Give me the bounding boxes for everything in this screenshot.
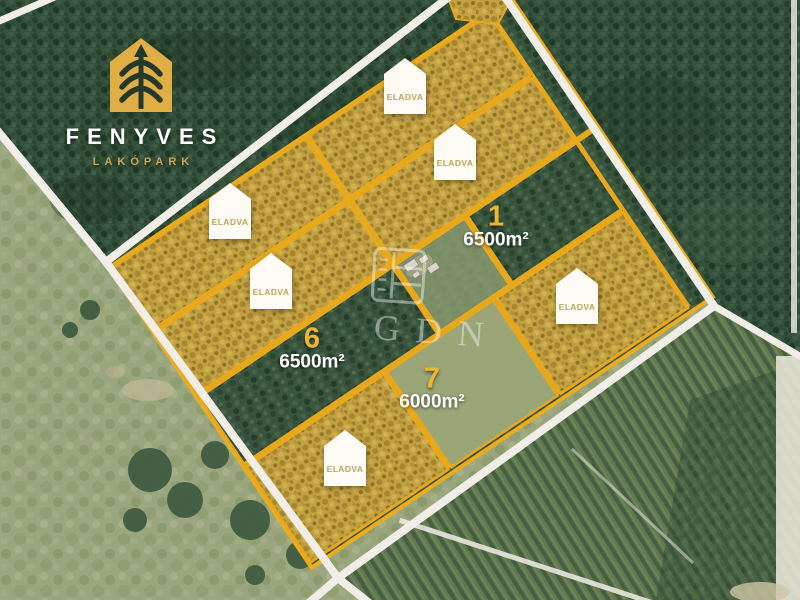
parcel-label: 6 6500m² [279, 326, 345, 373]
parcel-area: 6000m² [399, 392, 465, 413]
sold-badge-label: ELADVA [250, 287, 292, 297]
parcel-area: 6500m² [279, 352, 345, 373]
sold-badge: ELADVA [556, 268, 598, 324]
house-icon [556, 268, 598, 324]
parcel-label: 1 6500m² [463, 204, 529, 251]
light-strip-right [776, 356, 800, 600]
sold-badge-label: ELADVA [556, 302, 598, 312]
parcel-number: 7 [399, 366, 465, 392]
parcel-number: 6 [279, 326, 345, 352]
aerial-parcel-map: FENYVES LAKÓPARK GDN ELADVA ELADVA [0, 0, 800, 600]
sold-badge: ELADVA [324, 430, 366, 486]
sold-badge: ELADVA [209, 183, 251, 239]
sold-badge: ELADVA [250, 253, 292, 309]
parcel-number: 1 [463, 204, 529, 230]
house-icon [209, 183, 251, 239]
sold-badge-label: ELADVA [324, 464, 366, 474]
sold-badge-label: ELADVA [209, 217, 251, 227]
sold-badge: ELADVA [434, 124, 476, 180]
house-icon [384, 58, 426, 114]
sold-badge-label: ELADVA [434, 158, 476, 168]
sold-badge: ELADVA [384, 58, 426, 114]
house-icon [324, 430, 366, 486]
sold-badge-label: ELADVA [384, 92, 426, 102]
house-icon [434, 124, 476, 180]
parcel-area: 6500m² [463, 230, 529, 251]
house-icon [250, 253, 292, 309]
parcel-label: 7 6000m² [399, 366, 465, 413]
